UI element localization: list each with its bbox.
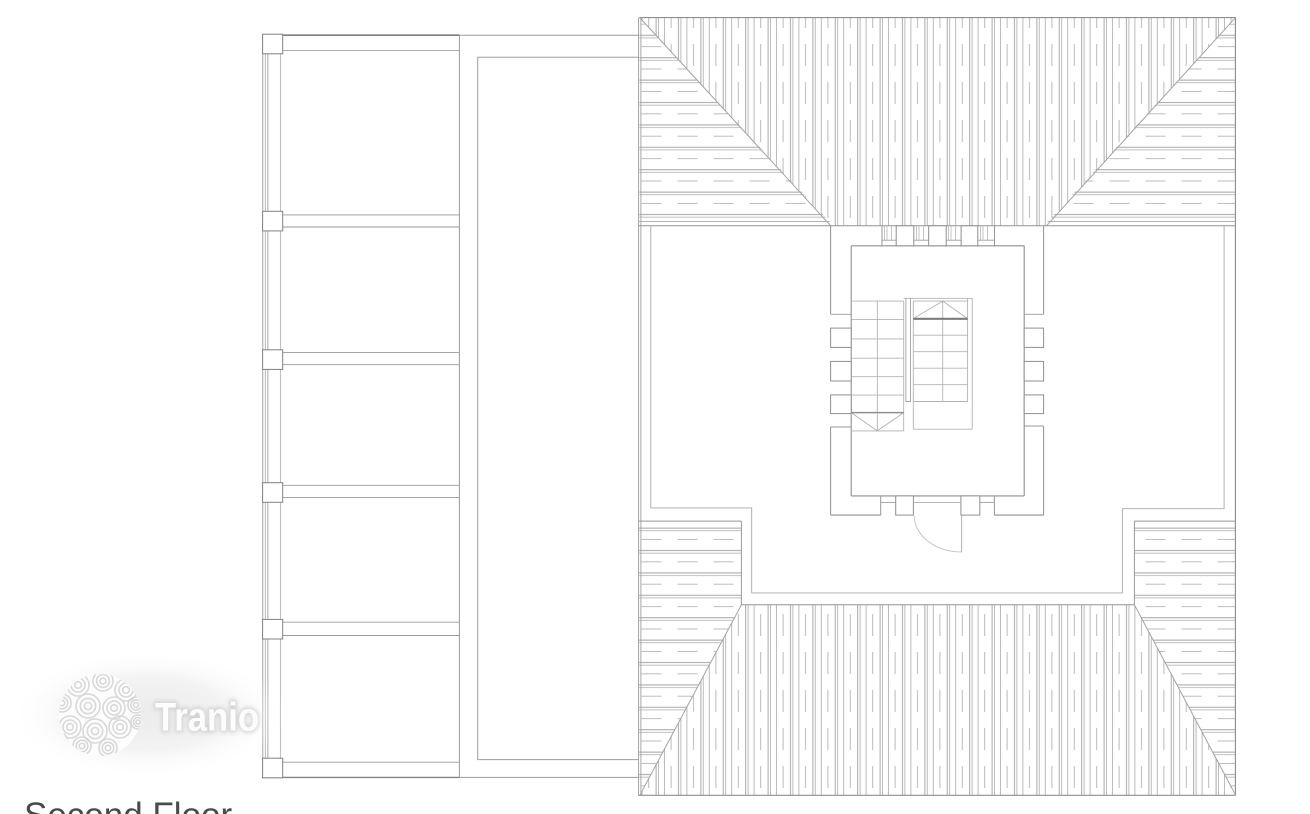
svg-text:Second Floor: Second Floor [24,796,233,814]
svg-text:Tranio: Tranio [155,696,259,740]
